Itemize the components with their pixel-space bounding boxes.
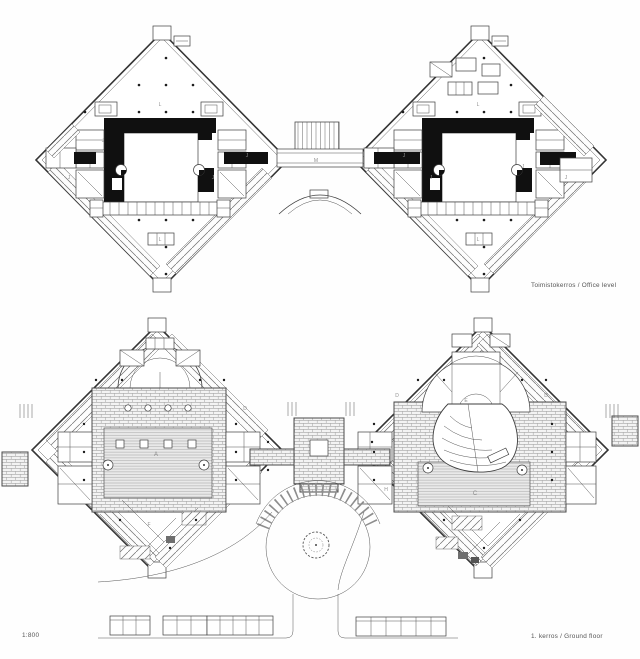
- street-outbuildings: [110, 616, 446, 636]
- room-label: D: [243, 406, 247, 412]
- room-label: L: [477, 237, 480, 243]
- room-label: L: [159, 102, 162, 108]
- scale-caption: 1:800: [22, 632, 39, 639]
- room-label: A: [154, 452, 158, 458]
- ground-tower-left: [32, 318, 282, 578]
- room-label: L: [477, 102, 480, 108]
- office-link-bridge: [277, 122, 363, 214]
- ground-floor-plan: A C D D D E F H 1:800 1. kerros / Ground…: [2, 318, 638, 640]
- ground-floor-caption: 1. kerros / Ground floor: [531, 633, 603, 640]
- courtyard-tree: [303, 532, 329, 558]
- room-label: F: [147, 522, 150, 528]
- office-level-caption: Toimistokerros / Office level: [531, 282, 616, 289]
- room-label: D: [544, 393, 548, 399]
- office-level-plan: L L L L M J J J J J J J J Toimistokerros…: [36, 26, 616, 292]
- auditorium-block: [394, 352, 566, 512]
- ground-tower-right: [358, 318, 608, 578]
- architectural-drawing-sheet: L L L L M J J J J J J J J Toimistokerros…: [0, 0, 640, 659]
- room-label: L: [159, 237, 162, 243]
- plaza-circle: [266, 495, 370, 599]
- floor-plan-drawing: L L L L M J J J J J J J J Toimistokerros…: [0, 0, 640, 659]
- auditorium-seating-bowl: [433, 404, 517, 472]
- room-label: D: [395, 393, 399, 399]
- room-label: H: [384, 487, 388, 493]
- room-label: C: [473, 491, 478, 497]
- room-label: M: [314, 158, 318, 164]
